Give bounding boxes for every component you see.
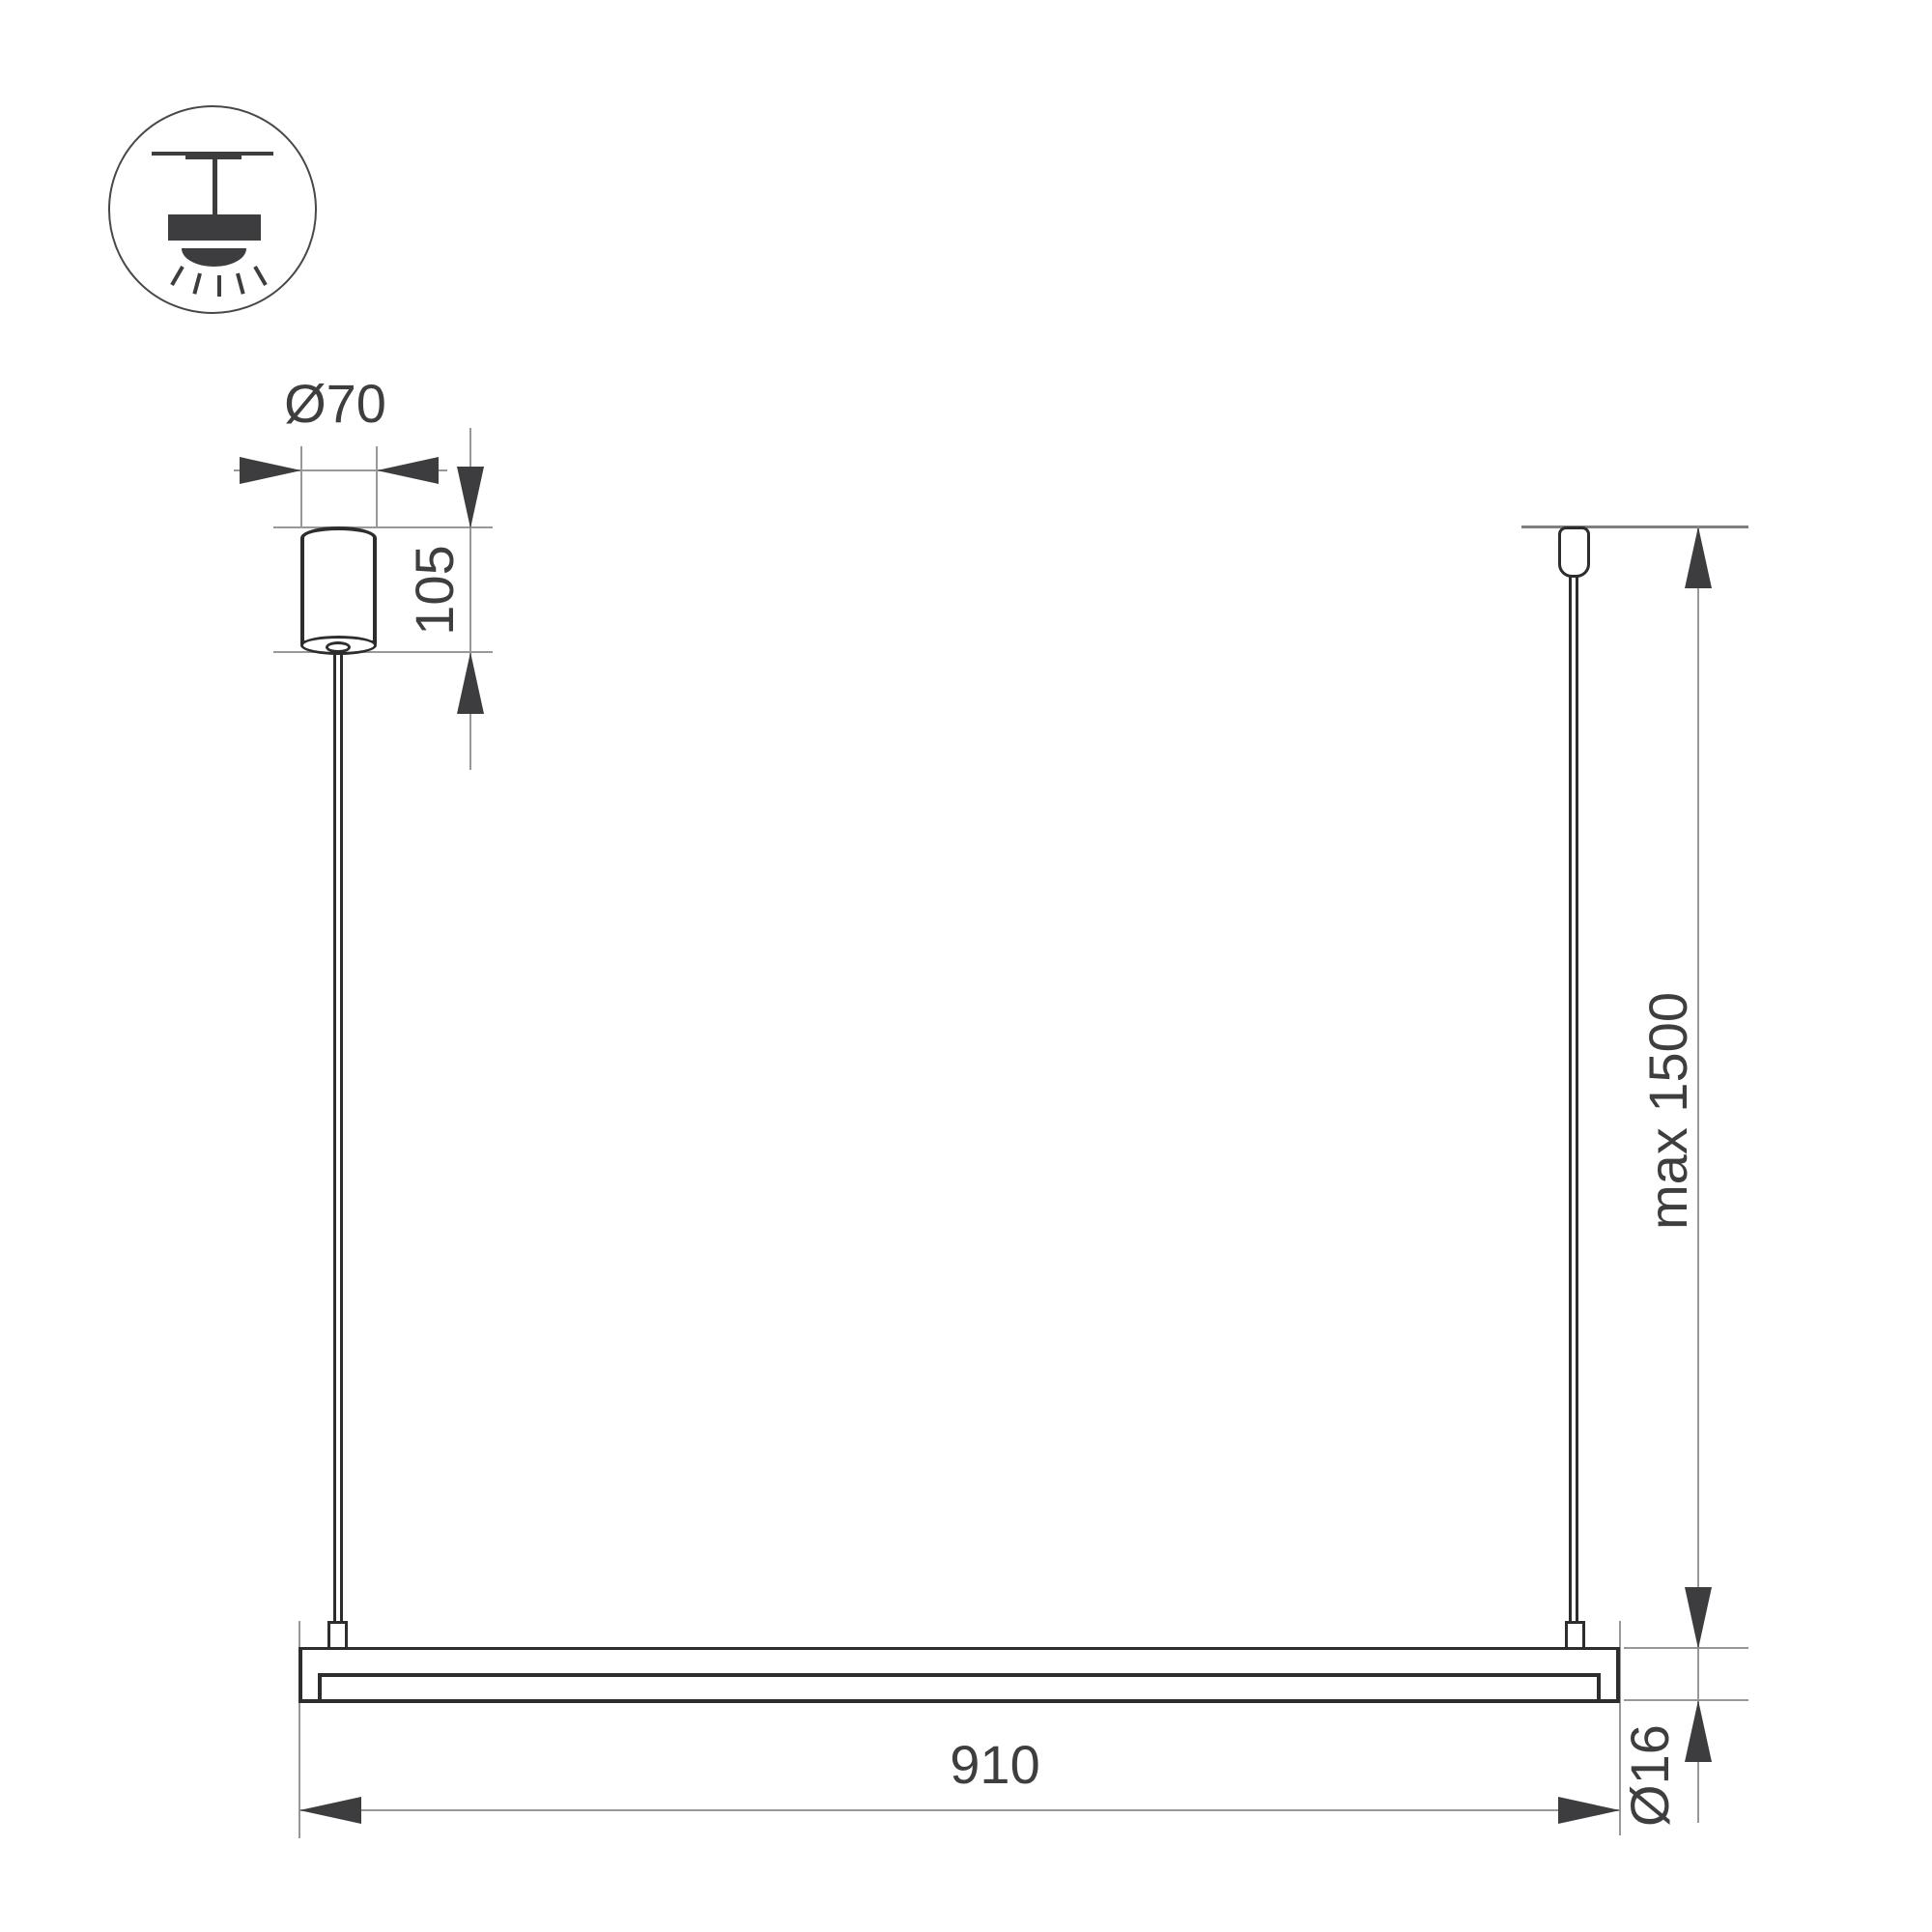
- icon-lamp-body: [168, 214, 261, 241]
- cable-grip-left: [327, 1621, 348, 1650]
- icon-suspension-rod: [213, 159, 217, 215]
- icon-light-ray: [217, 275, 221, 297]
- light-bar-endcap-step: [318, 1673, 322, 1699]
- arrow-left: [299, 1797, 361, 1824]
- technical-drawing-canvas: Ø70 105 max 1500 Ø16 910: [0, 0, 1932, 1932]
- arrow-left: [377, 457, 439, 484]
- canopy-diameter-label: Ø70: [239, 377, 432, 431]
- light-bar-endcap-step: [1597, 1673, 1601, 1699]
- suspension-cable-right: [1569, 577, 1578, 1623]
- suspension-cable-left: [333, 652, 343, 1623]
- canopy-cable-gland: [326, 641, 351, 653]
- icon-mount-plate: [185, 153, 241, 159]
- arrow-up: [1685, 526, 1712, 588]
- bar-length-label: 910: [898, 1738, 1092, 1792]
- light-bar-diffuser-line: [320, 1673, 1599, 1677]
- arrow-down: [1685, 1587, 1712, 1649]
- bar-diameter-label: Ø16: [1623, 1698, 1677, 1853]
- arrow-right: [240, 457, 301, 484]
- canopy-body: [300, 526, 377, 644]
- ceiling-cable-grip: [1558, 526, 1590, 578]
- dimension-line-bar-length: [298, 1809, 1620, 1811]
- ceiling-line: [1521, 526, 1748, 528]
- canopy-height-label: 105: [408, 518, 462, 663]
- cable-grip-right: [1565, 1621, 1585, 1650]
- arrow-up: [1685, 1700, 1712, 1762]
- arrow-right: [1558, 1797, 1620, 1824]
- max-suspension-label: max 1500: [1641, 966, 1695, 1256]
